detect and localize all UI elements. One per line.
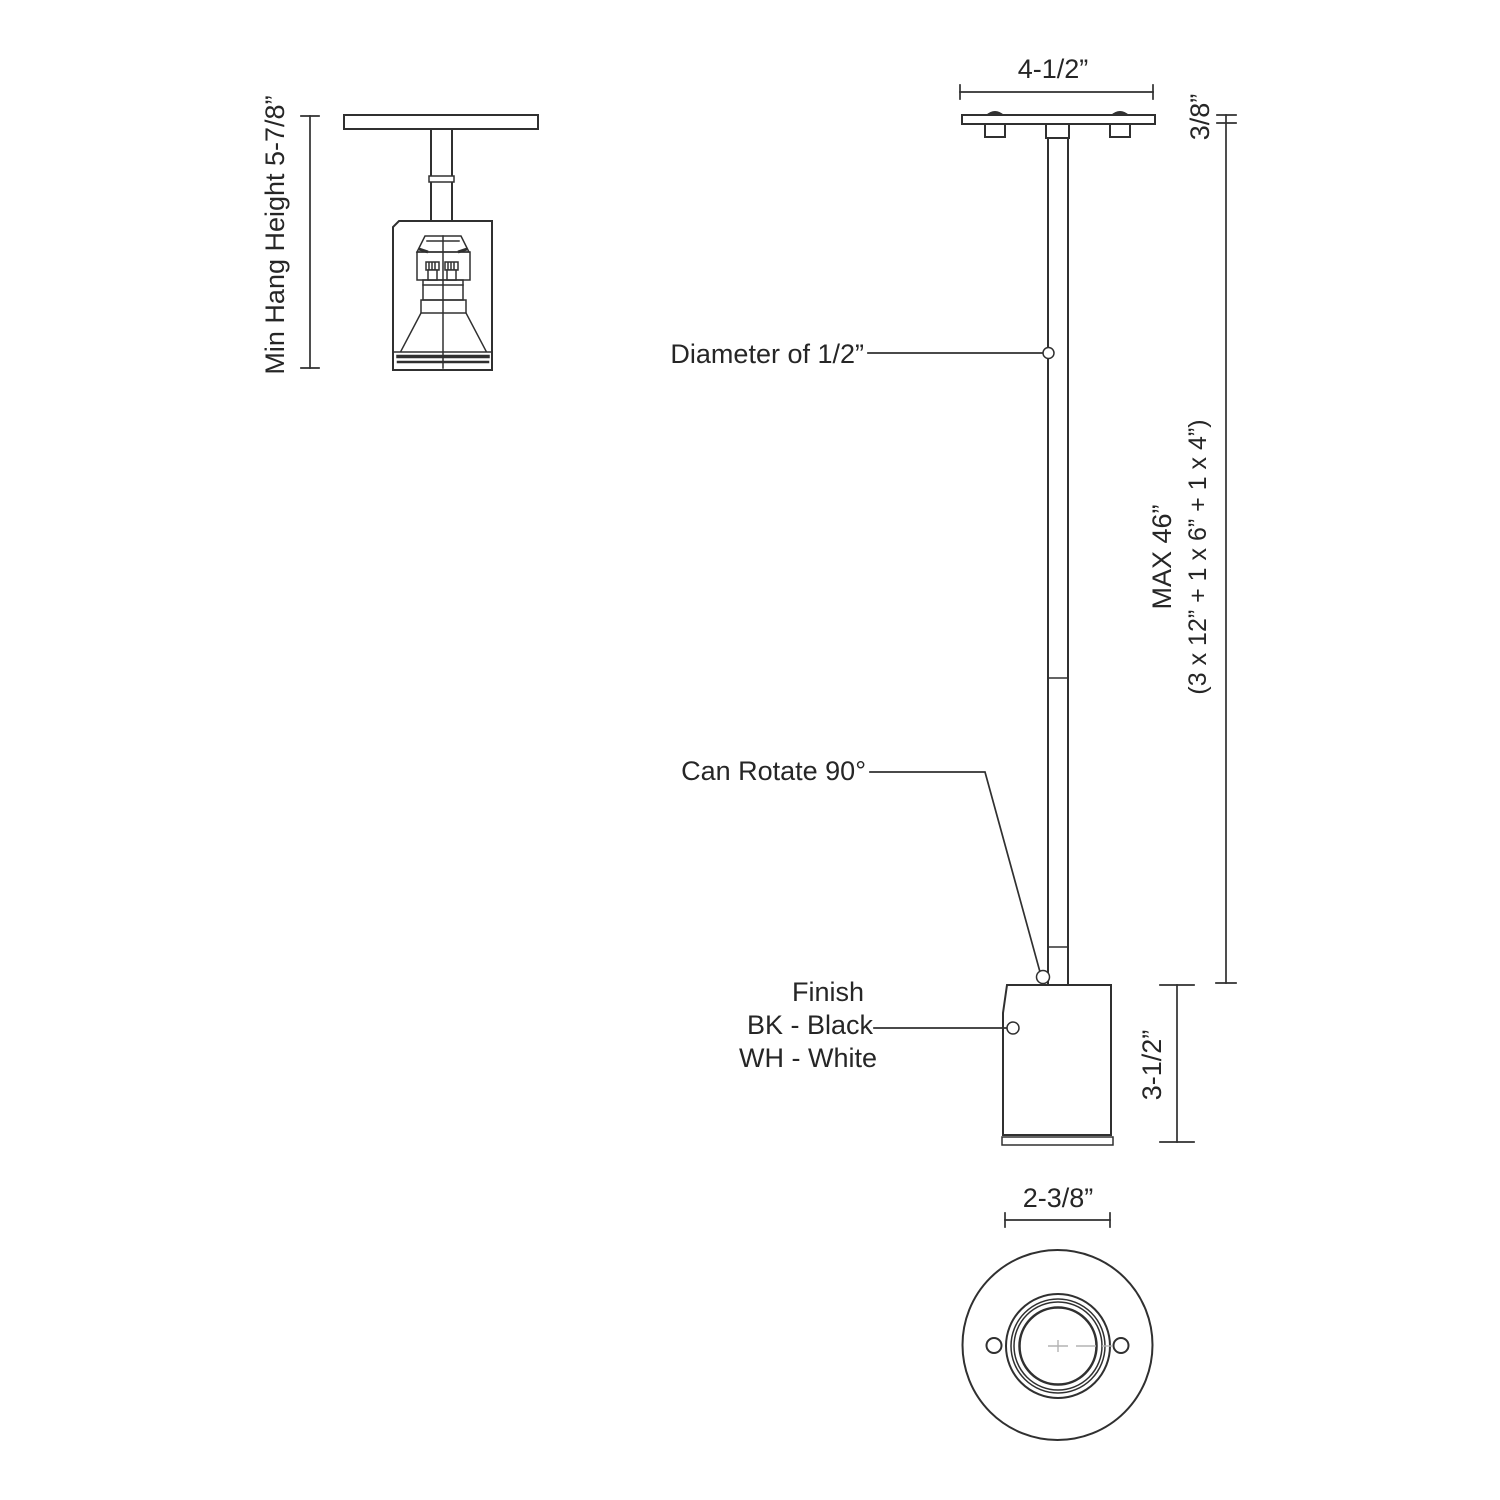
leader-endpoint-circle [1007, 1022, 1019, 1034]
downrod [1048, 138, 1068, 985]
rod-diameter-callout: Diameter of 1/2” [670, 339, 1054, 369]
screw-body [447, 270, 456, 280]
mounting-screw-left [985, 124, 1005, 137]
head-diameter-label: 2-3/8” [1023, 1183, 1094, 1213]
dimension-drawing-page: Min Hang Height 5-7/8” 4-1/2” 3/8” [0, 0, 1500, 1500]
min-hang-height-label: Min Hang Height 5-7/8” [260, 95, 290, 374]
leader-endpoint-circle [1037, 971, 1050, 984]
can-rotate-label: Can Rotate 90° [681, 756, 866, 786]
terminal-screw-left [426, 262, 439, 280]
screw-body [428, 270, 437, 280]
stem-joint-band [429, 176, 454, 182]
finish-black-label: BK - Black [747, 1010, 874, 1040]
min-hang-dimension: Min Hang Height 5-7/8” [260, 95, 319, 374]
side-view-min-hang [344, 115, 538, 370]
finish-white-label: WH - White [739, 1043, 877, 1073]
canopy-thickness-label: 3/8” [1185, 94, 1215, 141]
leader-endpoint-circle [1043, 348, 1054, 359]
canopy-plate-side [344, 115, 538, 129]
max-length-label-line1: MAX 46” [1147, 504, 1177, 609]
head-height-dimension: 3-1/2” [1137, 985, 1194, 1142]
leader-line [870, 772, 1040, 972]
canopy-plate [962, 115, 1155, 124]
max-length-label-line2: (3 x 12” + 1 x 6” + 1 x 4”) [1184, 419, 1212, 694]
front-view-pendant: 4-1/2” [960, 54, 1155, 1145]
rod-collar [1046, 124, 1069, 138]
bottom-view [963, 1250, 1153, 1440]
max-length-dimension: MAX 46” (3 x 12” + 1 x 6” + 1 x 4”) [1147, 419, 1236, 983]
head-diameter-dimension: 2-3/8” [1005, 1183, 1110, 1227]
screw-hole-left [987, 1338, 1002, 1353]
terminal-screw-right [445, 262, 458, 280]
head-height-label: 3-1/2” [1137, 1030, 1167, 1101]
cylinder-trim-ring [1002, 1137, 1113, 1145]
canopy-width-label: 4-1/2” [1018, 54, 1089, 84]
can-rotate-callout: Can Rotate 90° [681, 756, 1049, 984]
stem-side [431, 129, 452, 221]
pendant-fixture-technical-drawing: Min Hang Height 5-7/8” 4-1/2” 3/8” [0, 0, 1500, 1500]
screw-hole-right [1114, 1338, 1129, 1353]
rod-diameter-label: Diameter of 1/2” [670, 339, 864, 369]
mounting-screw-right [1110, 124, 1130, 137]
finish-title-label: Finish [792, 977, 864, 1007]
canopy-width-dimension: 4-1/2” [960, 54, 1153, 99]
finish-callout: Finish BK - Black WH - White [739, 977, 1019, 1073]
cylinder-head [1003, 985, 1111, 1135]
